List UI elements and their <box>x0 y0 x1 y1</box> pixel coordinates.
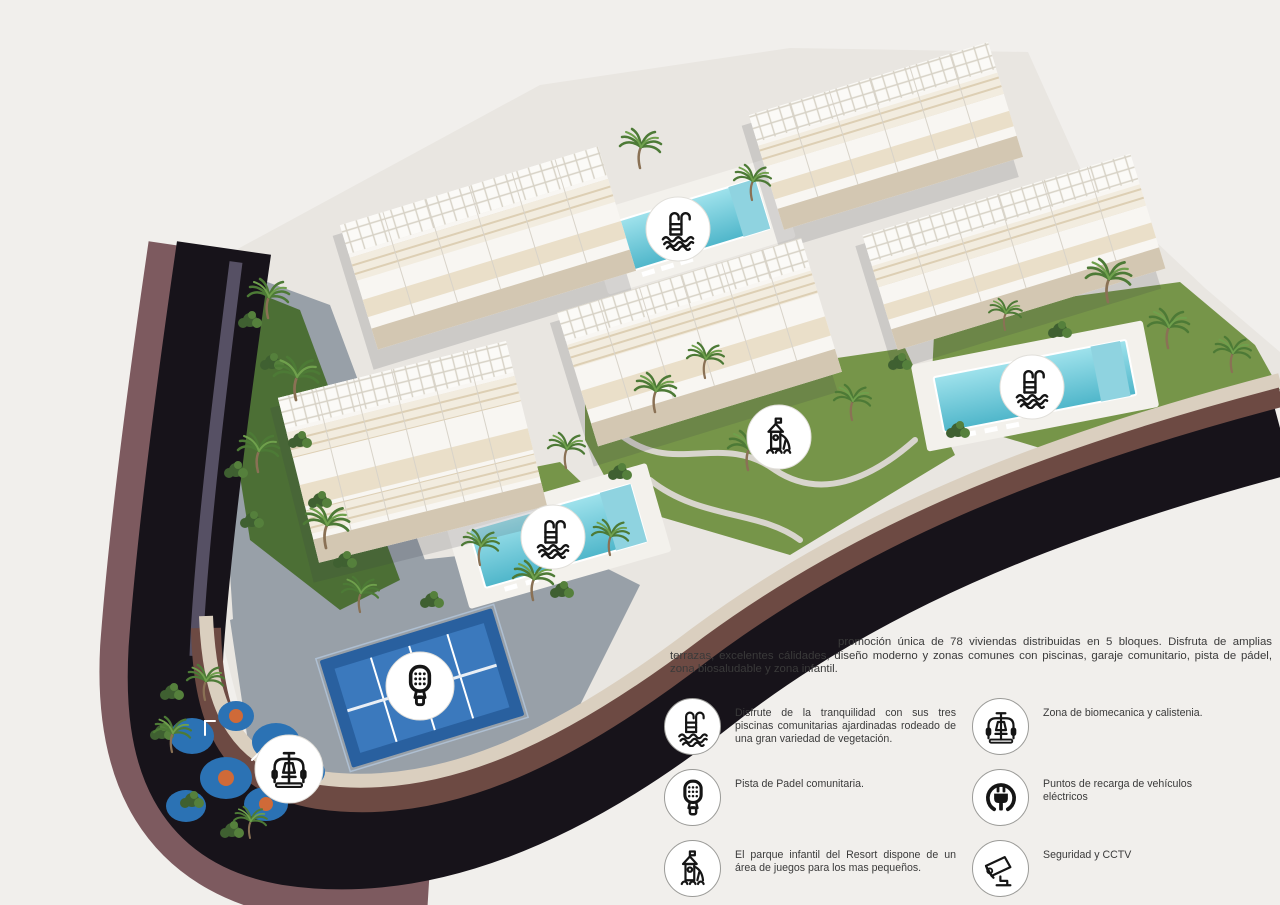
pool-icon <box>664 698 721 755</box>
cctv-icon <box>972 840 1029 897</box>
legend-left-column: Disfrute de la tranquilidad con sus tres… <box>664 698 956 897</box>
legend-item-text: Puntos de recarga de vehículos eléctrico… <box>1043 769 1214 804</box>
legend-item-ev-charging: Puntos de recarga de vehículos eléctrico… <box>972 769 1214 826</box>
legend-item-padel: Pista de Padel comunitaria. <box>664 769 956 826</box>
legend-item-biomechanics: Zona de biomecanica y calistenia. <box>972 698 1214 755</box>
ev-charging-icon <box>972 769 1029 826</box>
padel-icon <box>664 769 721 826</box>
legend-item-text: Pista de Padel comunitaria. <box>735 769 864 791</box>
biomechanics-badge <box>255 735 323 803</box>
legend-item-text: Seguridad y CCTV <box>1043 840 1131 862</box>
top-pool-badge <box>646 197 710 261</box>
playground-icon <box>664 840 721 897</box>
center-pool-badge <box>521 505 585 569</box>
promo-paragraph: promoción única de 78 viviendas distribu… <box>670 636 1272 677</box>
legend-item-text: El parque infantil del Resort dispone de… <box>735 840 956 875</box>
playground-badge <box>747 405 811 469</box>
legend-item-pools: Disfrute de la tranquilidad con sus tres… <box>664 698 956 755</box>
right-pool-badge <box>1000 355 1064 419</box>
legend-item-text: Disfrute de la tranquilidad con sus tres… <box>735 698 956 747</box>
legend-item-playground: El parque infantil del Resort dispone de… <box>664 840 956 897</box>
padel-badge <box>386 652 454 720</box>
legend-item-text: Zona de biomecanica y calistenia. <box>1043 698 1203 720</box>
legend-item-cctv: Seguridad y CCTV <box>972 840 1214 897</box>
legend-right-column: Zona de biomecanica y calistenia. Puntos… <box>972 698 1214 897</box>
biomechanics-icon <box>972 698 1029 755</box>
